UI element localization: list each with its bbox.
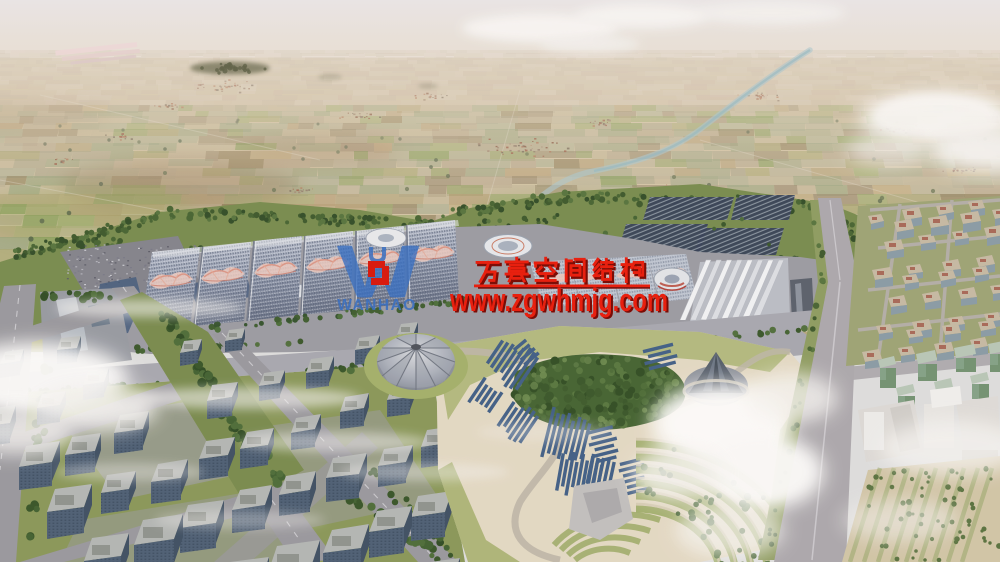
svg-text:www.zgwhmjg.com: www.zgwhmjg.com <box>449 282 668 318</box>
svg-text:WANHAO: WANHAO <box>337 297 417 314</box>
